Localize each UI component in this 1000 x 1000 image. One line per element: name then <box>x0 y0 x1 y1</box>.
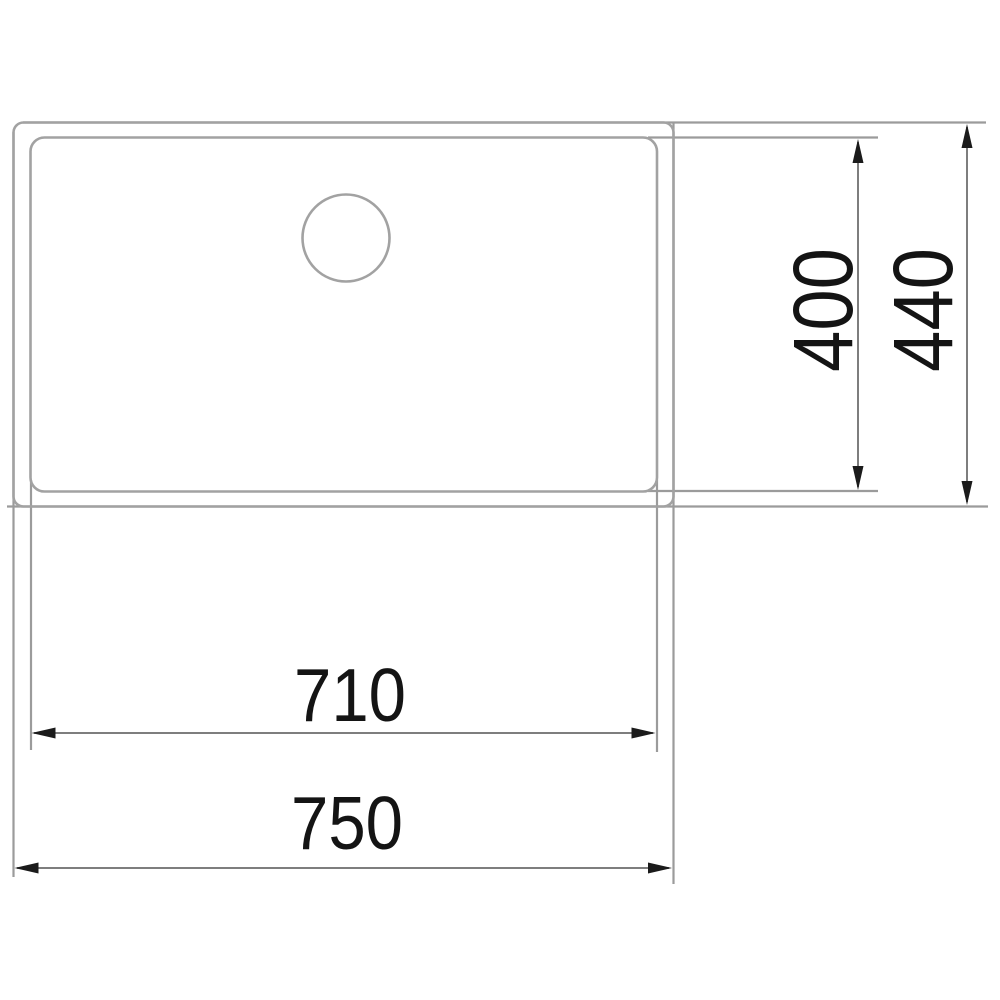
arrowhead-440-down <box>962 481 973 505</box>
sink-basin-outline <box>31 138 658 492</box>
arrowhead-440-up <box>962 124 973 148</box>
faucet-hole-circle <box>303 195 390 282</box>
dimension-label-inner-width: 710 <box>294 653 406 737</box>
drawing-canvas: 400 440 710 750 <box>0 0 1000 1000</box>
technical-drawing: 400 440 710 750 <box>0 0 1000 1000</box>
arrowhead-710-left <box>32 728 56 739</box>
arrowhead-750-left <box>15 863 39 874</box>
arrowhead-750-right <box>648 863 672 874</box>
dimension-label-outer-width: 750 <box>291 781 403 865</box>
arrowhead-710-right <box>632 728 656 739</box>
dimension-label-inner-depth: 400 <box>776 248 870 372</box>
arrowhead-400-up <box>853 139 864 163</box>
sink-outer-rim-outline <box>14 123 674 507</box>
arrowhead-400-down <box>853 466 864 490</box>
dimension-label-outer-depth: 440 <box>876 248 970 372</box>
